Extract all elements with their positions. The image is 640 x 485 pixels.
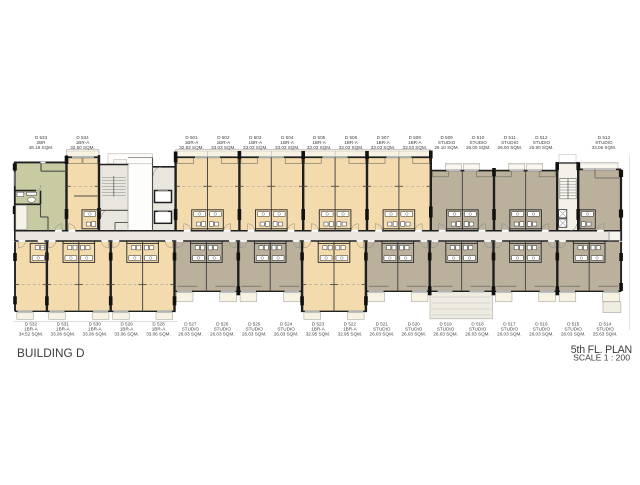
svg-text:26.10 SQM.: 26.10 SQM. xyxy=(434,145,459,150)
svg-text:26.00 SQM.: 26.00 SQM. xyxy=(466,145,491,150)
svg-text:33.06 SQM.: 33.06 SQM. xyxy=(83,332,108,337)
svg-text:34.52 SQM.: 34.52 SQM. xyxy=(19,332,44,337)
svg-text:SCALE 1 : 200: SCALE 1 : 200 xyxy=(573,353,630,363)
svg-text:32.60 SQM.: 32.60 SQM. xyxy=(70,145,95,150)
svg-text:33.06 SQM.: 33.06 SQM. xyxy=(51,332,76,337)
svg-text:BUILDING D: BUILDING D xyxy=(17,346,85,360)
svg-text:26.03 SQM.: 26.03 SQM. xyxy=(274,332,299,337)
svg-text:26.03 SQM.: 26.03 SQM. xyxy=(242,332,267,337)
svg-text:26.03 SQM.: 26.03 SQM. xyxy=(561,332,586,337)
svg-text:25.63 SQM.: 25.63 SQM. xyxy=(593,332,618,337)
svg-text:26.03 SQM.: 26.03 SQM. xyxy=(497,332,522,337)
svg-text:25.90 SQM.: 25.90 SQM. xyxy=(529,145,554,150)
svg-text:26.03 SQM.: 26.03 SQM. xyxy=(433,332,458,337)
svg-text:32.83 SQM.: 32.83 SQM. xyxy=(179,145,204,150)
svg-text:26.03 SQM.: 26.03 SQM. xyxy=(178,332,203,337)
svg-text:33.06 SQM.: 33.06 SQM. xyxy=(114,332,139,337)
svg-text:26.03 SQM.: 26.03 SQM. xyxy=(370,332,395,337)
svg-text:32.95 SQM.: 32.95 SQM. xyxy=(338,332,363,337)
svg-text:46.18 SQM.: 46.18 SQM. xyxy=(29,145,54,150)
svg-text:26.00 SQM.: 26.00 SQM. xyxy=(498,145,523,150)
svg-text:26.03 SQM.: 26.03 SQM. xyxy=(529,332,554,337)
svg-text:33.03 SQM.: 33.03 SQM. xyxy=(211,145,236,150)
svg-text:33.03 SQM.: 33.03 SQM. xyxy=(243,145,268,150)
svg-text:33.03 SQM.: 33.03 SQM. xyxy=(371,145,396,150)
svg-text:26.03 SQM.: 26.03 SQM. xyxy=(401,332,426,337)
svg-text:33.06 SQM.: 33.06 SQM. xyxy=(592,145,617,150)
svg-text:32.95 SQM.: 32.95 SQM. xyxy=(306,332,331,337)
svg-text:26.03 SQM.: 26.03 SQM. xyxy=(465,332,490,337)
svg-text:26.03 SQM.: 26.03 SQM. xyxy=(210,332,235,337)
svg-text:33.03 SQM.: 33.03 SQM. xyxy=(275,145,300,150)
svg-text:33.03 SQM.: 33.03 SQM. xyxy=(403,145,428,150)
svg-text:33.03 SQM.: 33.03 SQM. xyxy=(307,145,332,150)
svg-text:33.03 SQM.: 33.03 SQM. xyxy=(339,145,364,150)
svg-text:33.06 SQM.: 33.06 SQM. xyxy=(146,332,171,337)
